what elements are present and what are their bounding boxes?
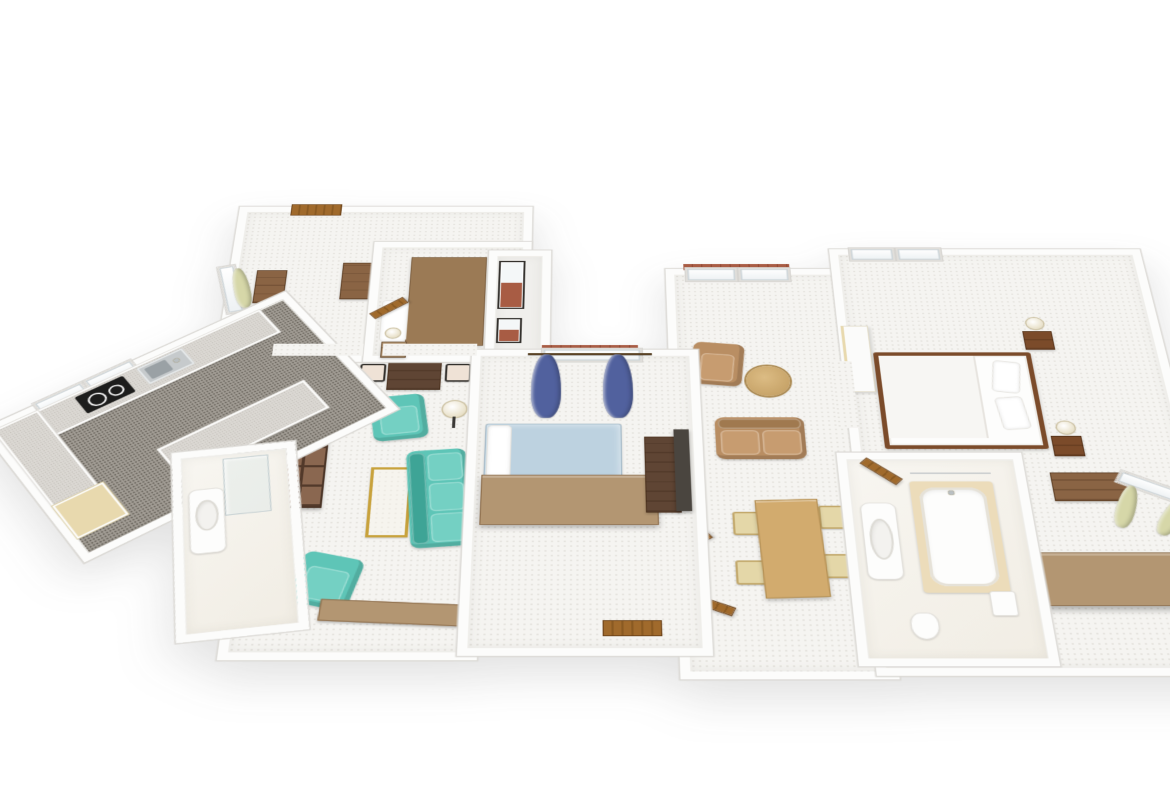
skylight-window [895, 248, 942, 261]
bed-blue-pillow [485, 425, 512, 478]
blue-curtain [603, 354, 634, 418]
bathtub [918, 487, 1001, 586]
toilet [909, 613, 941, 640]
floor-lamp-base [452, 417, 456, 428]
sofa-back [408, 453, 429, 545]
nightstand-lamp [1056, 422, 1076, 434]
bathroom-door-leaf [860, 457, 903, 485]
glass-shower [223, 455, 272, 516]
master-pillow [992, 360, 1021, 394]
floorplan-render: { "scene": { "type": "isometric-3d-floor… [0, 0, 1170, 785]
cistern [989, 591, 1019, 616]
faucet [172, 358, 180, 364]
nightstand [1051, 436, 1086, 456]
sofa-cushion [427, 452, 464, 481]
room-middle-bedroom [457, 350, 713, 656]
bed-blanket-fold [878, 356, 989, 438]
french-door [738, 268, 790, 282]
brick-juliet-window [496, 318, 522, 343]
wood-bench [317, 599, 464, 626]
master-bed [873, 352, 1049, 449]
nightstand-lamp [1025, 318, 1044, 329]
armchair-seat [699, 353, 735, 382]
passage-nook-living [382, 344, 477, 356]
nightstand [1022, 331, 1055, 350]
apartment-plan [0, 203, 1170, 675]
brass-coffee-table [365, 467, 413, 537]
brick-juliet-window [497, 261, 525, 309]
tub-faucet [948, 490, 955, 495]
round-side-table [745, 366, 791, 396]
sink-basin [195, 499, 219, 532]
bedroom-door [603, 620, 663, 636]
shower-rail [910, 473, 991, 474]
loveseat-cushion [720, 430, 760, 455]
vanity-sink [188, 487, 227, 555]
loveseat-back [718, 419, 802, 429]
master-pillow [994, 396, 1032, 430]
blue-curtain [530, 354, 561, 418]
bedroom-window [542, 348, 643, 361]
desk [386, 361, 442, 390]
side-chair [445, 364, 472, 382]
room-main-bathroom [836, 453, 1060, 667]
loveseat-cushion [762, 430, 803, 455]
burner [105, 382, 127, 398]
sink-basin [868, 519, 896, 560]
brown-loveseat [714, 417, 807, 459]
sofa-cushion [428, 481, 465, 511]
entry-door [290, 204, 342, 215]
floor-lamp [442, 401, 466, 417]
room-small-bathroom [172, 441, 310, 643]
wardrobe [479, 475, 659, 525]
passage-entry-living [272, 344, 364, 356]
small-bed-cover [405, 257, 487, 345]
skylight-window [849, 248, 896, 261]
french-door [685, 268, 737, 282]
bathtub-surround [909, 481, 1011, 592]
vanity-sink [860, 503, 905, 580]
